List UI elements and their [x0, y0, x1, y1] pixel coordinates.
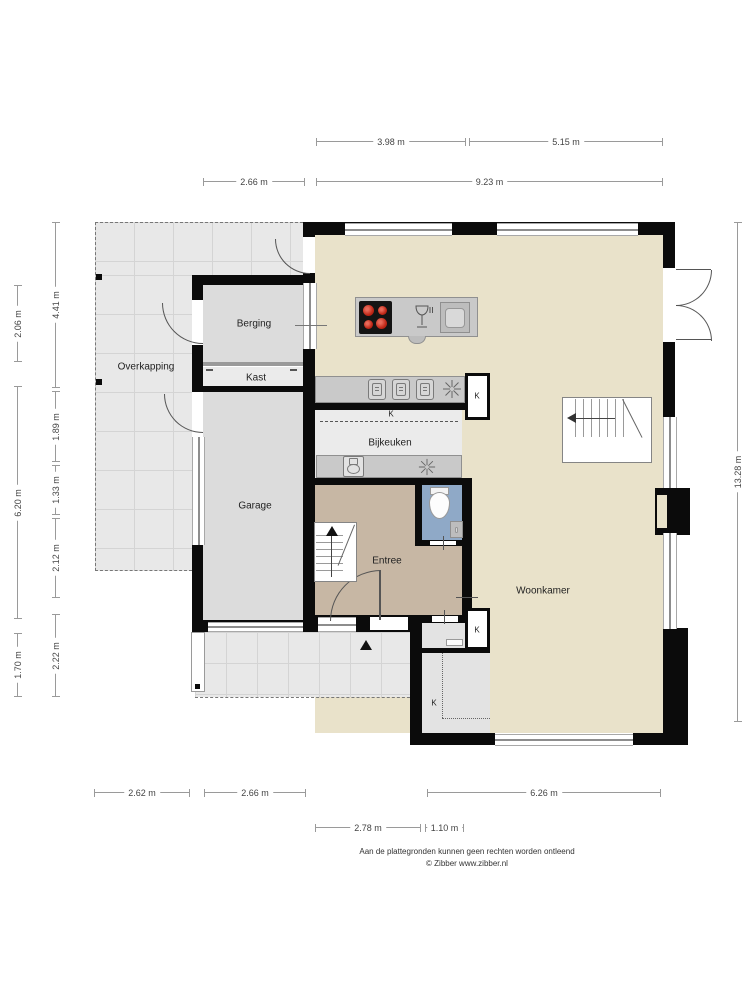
burner-icon	[378, 306, 387, 315]
porch-dashed-bottom	[195, 697, 415, 698]
porch-column	[191, 632, 205, 692]
entree-woonkamer-opening-tick	[456, 597, 478, 598]
dim-left-620: 6.20 m	[17, 386, 18, 619]
burner-icon	[363, 305, 374, 316]
island-sink-icon	[440, 302, 470, 333]
doormat	[446, 639, 463, 646]
french-door-lower-arc	[676, 305, 712, 341]
wall-lobby-left-block	[410, 615, 422, 745]
k-label-bijkeuken: K	[388, 410, 393, 419]
wall-bottom-right-piece	[633, 733, 665, 745]
nook-dotted-horizontal	[442, 718, 490, 719]
kast-slider-handle-left	[206, 369, 213, 371]
bijkeuken-dashed-line	[320, 421, 458, 422]
dim-left-441: 4.41 m	[55, 222, 56, 388]
oven-icon	[416, 379, 434, 400]
dim-bottom-262: 2.62 m	[94, 792, 190, 793]
dim-top-923: 9.23 m	[316, 181, 663, 182]
woonkamer-stairs	[562, 397, 652, 463]
room-label-bijkeuken: Bijkeuken	[368, 438, 411, 449]
footer-disclaimer: Aan de plattegronden kunnen geen rechten…	[250, 846, 684, 870]
dim-left-189: 1.89 m	[55, 391, 56, 462]
dim-right-1328: 13.28 m	[737, 222, 738, 722]
porch-column-dot	[195, 684, 200, 689]
wall-right-b	[663, 342, 675, 417]
dim-bottom-626: 6.26 m	[427, 792, 661, 793]
dim-label: 13.28 m	[733, 452, 743, 493]
wall-left-main-top	[303, 222, 315, 237]
wall-berging-top	[192, 275, 303, 285]
french-door-upper-arc	[676, 270, 712, 306]
cooktop-icon	[359, 301, 392, 334]
opening-back-door	[432, 616, 458, 622]
kast-sliding-door	[203, 362, 303, 366]
dim-label: 6.26 m	[526, 788, 562, 798]
window-right-upper	[663, 417, 677, 488]
toilet-sink-icon	[450, 521, 463, 538]
dim-left-222: 2.22 m	[55, 614, 56, 697]
dishwasher-icon	[412, 303, 434, 331]
dim-label: 2.78 m	[350, 823, 386, 833]
dim-left-133: 1.33 m	[55, 465, 56, 515]
corner-nook-floor	[422, 653, 490, 733]
dim-label: 2.06 m	[13, 306, 23, 342]
stair-arrow-stem	[331, 535, 332, 577]
window-top-left	[345, 223, 452, 236]
wall-toilet-left	[415, 485, 422, 540]
dim-label: 4.41 m	[51, 287, 61, 323]
oven-icon	[392, 379, 410, 400]
window-kitchen-left	[303, 283, 317, 349]
dim-bottom-110: 1.10 m	[425, 827, 464, 828]
dim-label: 2.22 m	[51, 638, 61, 674]
overkapping-post	[96, 379, 102, 385]
extractor-fan-icon	[418, 458, 436, 476]
burner-icon	[376, 318, 387, 329]
floorplan-page: { "rooms": { "overkapping": "Overkapping…	[0, 0, 750, 1000]
entree-stairs	[314, 522, 357, 582]
window-berging-right	[303, 317, 317, 331]
french-door-lower-leaf	[676, 339, 711, 340]
dim-label: 2.62 m	[124, 788, 160, 798]
stairs-up-arrow-icon	[326, 526, 338, 536]
wall-bottom-left-piece	[422, 733, 495, 745]
overkapping-dashed-bottom	[95, 570, 192, 571]
entrance-arrow-icon	[360, 640, 372, 650]
overkapping-post	[96, 274, 102, 280]
back-door-tick	[444, 610, 445, 624]
garage-vehicle-door	[208, 622, 303, 632]
dim-label: 2.66 m	[236, 177, 272, 187]
extractor-fan-icon	[442, 379, 462, 399]
dim-label: 2.66 m	[237, 788, 273, 798]
oven-icon	[368, 379, 386, 400]
dim-top-398: 3.98 m	[316, 141, 466, 142]
dim-top-515: 5.15 m	[469, 141, 663, 142]
front-door-leaf	[379, 570, 381, 620]
room-label-overkapping: Overkapping	[118, 362, 175, 373]
dim-bottom-266: 2.66 m	[204, 792, 306, 793]
wall-right-a	[663, 222, 675, 270]
overkapping-floor-top	[95, 222, 303, 275]
room-label-kast: Kast	[246, 373, 266, 384]
dim-left-206: 2.06 m	[17, 285, 18, 362]
k-label-meterkast: K	[474, 626, 479, 635]
dim-label: 1.70 m	[13, 647, 23, 683]
dim-label: 2.12 m	[51, 540, 61, 576]
wall-garage-left-b	[192, 345, 203, 392]
wall-bijkeuken-bottom	[315, 478, 472, 485]
wall-entree-right	[462, 485, 472, 615]
window-garage-left	[192, 437, 205, 545]
k-label-nook: K	[431, 699, 436, 708]
wall-right-c	[663, 628, 688, 745]
room-label-woonkamer: Woonkamer	[516, 586, 570, 597]
window-top-right	[497, 223, 638, 236]
nook-dotted-vertical	[442, 650, 443, 718]
footer-line-2: © Zibber www.zibber.nl	[250, 858, 684, 870]
dim-label: 6.20 m	[13, 485, 23, 521]
porch-floor	[195, 632, 420, 697]
laundry-sink-icon	[343, 456, 364, 477]
room-label-berging: Berging	[237, 319, 271, 330]
overkapping-dashed-top	[95, 222, 303, 223]
stairs-left-arrow-icon	[567, 413, 576, 423]
opening-french-doors	[663, 268, 675, 342]
wall-garage-left-c	[192, 545, 203, 632]
dim-left-170: 1.70 m	[17, 633, 18, 697]
fireplace-notch	[657, 495, 667, 528]
window-right-lower	[663, 533, 677, 629]
dim-top-266: 2.66 m	[203, 181, 305, 182]
dim-label: 1.89 m	[51, 409, 61, 445]
kast-slider-handle-right	[290, 369, 297, 371]
stair-treads	[316, 529, 343, 577]
dim-bottom-278: 2.78 m	[315, 827, 421, 828]
window-bottom	[495, 734, 633, 746]
dim-left-212: 2.12 m	[55, 518, 56, 598]
french-door-upper-leaf	[676, 269, 711, 270]
bijkeuken-counter	[316, 455, 462, 478]
dim-label: 1.10 m	[427, 823, 463, 833]
k-label-kitchen-closet: K	[474, 392, 479, 401]
wall-kast-bottom	[192, 386, 303, 392]
footer-line-1: Aan de plattegronden kunnen geen rechten…	[250, 846, 684, 858]
wall-garage-left-a	[192, 285, 203, 300]
stair-arrow-stem	[575, 418, 615, 419]
room-label-garage: Garage	[238, 501, 271, 512]
dim-label: 5.15 m	[548, 137, 584, 147]
room-label-entree: Entree	[372, 556, 401, 567]
dim-label: 9.23 m	[472, 177, 508, 187]
burner-icon	[364, 320, 373, 329]
berging-label-leader	[295, 325, 327, 326]
toilet-door-tick	[443, 536, 444, 550]
dim-label: 1.33 m	[51, 472, 61, 508]
dim-label: 3.98 m	[373, 137, 409, 147]
